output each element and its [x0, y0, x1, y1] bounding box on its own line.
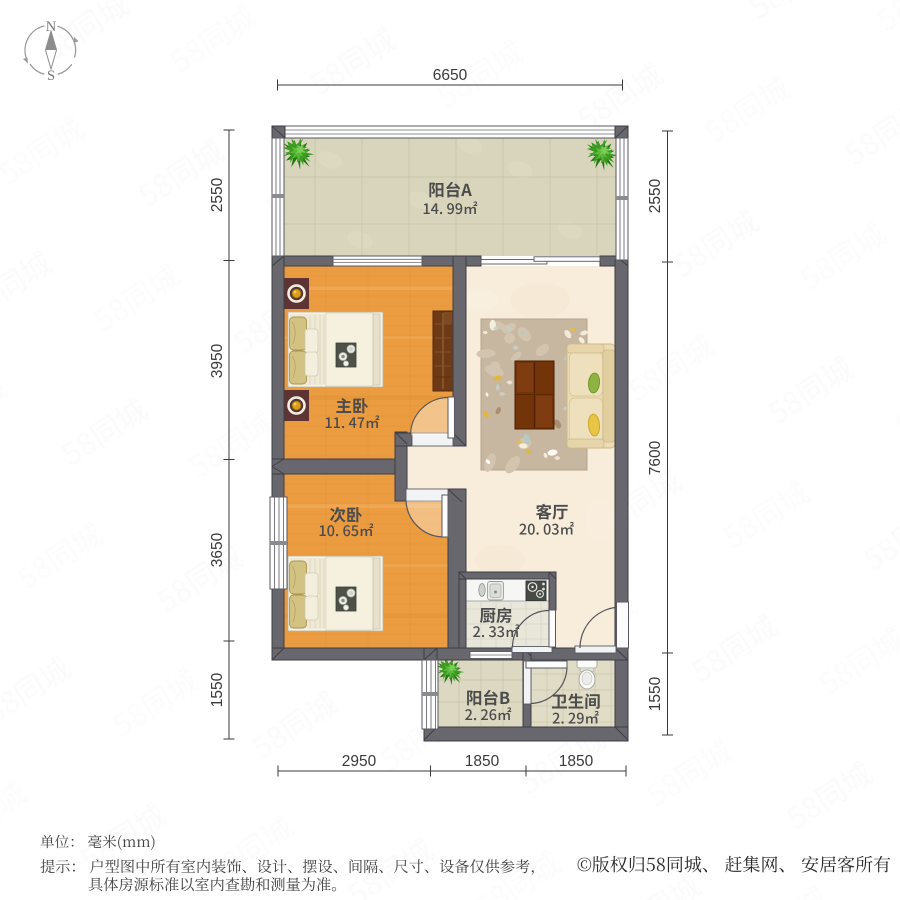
svg-text:7600: 7600 [647, 440, 664, 475]
svg-text:3950: 3950 [209, 343, 226, 378]
svg-text:1850: 1850 [465, 753, 500, 770]
svg-text:1550: 1550 [647, 676, 664, 711]
svg-text:3650: 3650 [209, 532, 226, 567]
svg-text:1550: 1550 [209, 672, 226, 707]
svg-text:N: N [46, 19, 57, 35]
svg-text:6650: 6650 [433, 67, 468, 84]
svg-text:2950: 2950 [342, 753, 377, 770]
svg-text:2550: 2550 [209, 177, 226, 212]
svg-text:1850: 1850 [559, 753, 594, 770]
svg-text:S: S [47, 68, 55, 84]
svg-text:2550: 2550 [647, 178, 664, 213]
